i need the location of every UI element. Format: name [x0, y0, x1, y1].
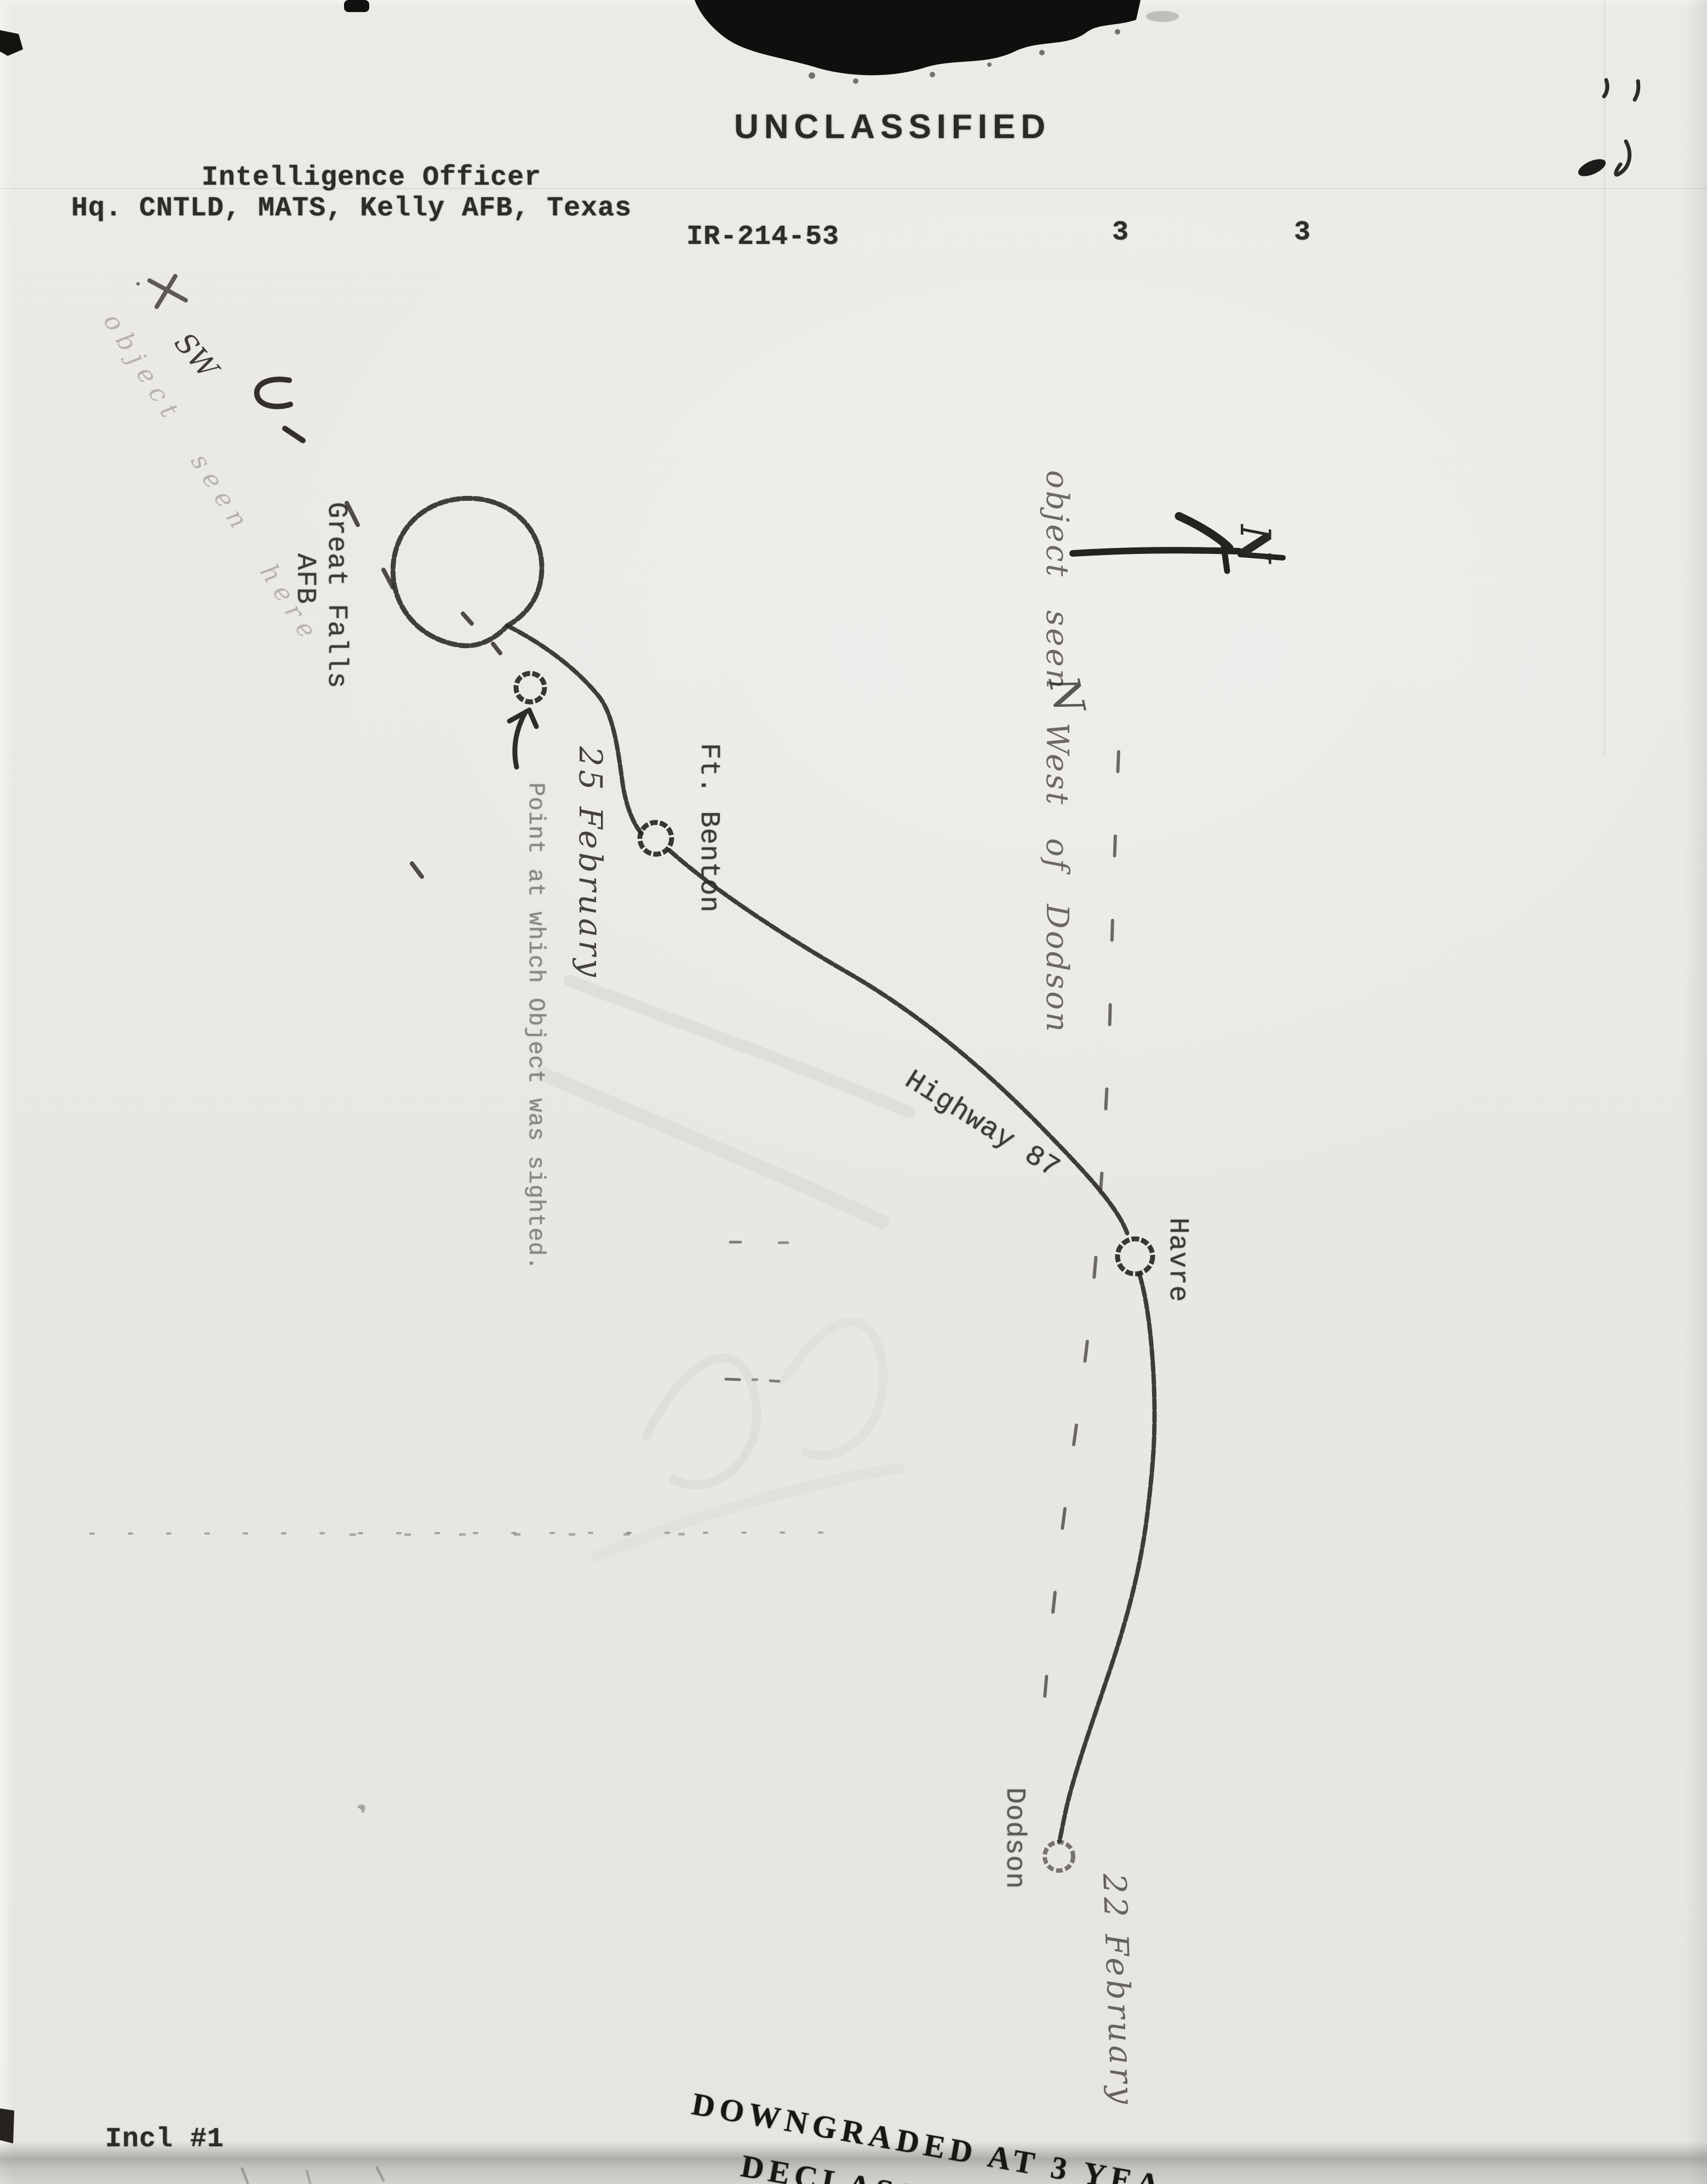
header-office-line: Intelligence Officer	[202, 162, 541, 193]
label-havre: Havre	[1162, 1217, 1193, 1302]
label-ft-benton: Ft. Benton	[693, 743, 724, 913]
leader-dashes-icon	[347, 503, 500, 877]
report-id: IR-214-53	[686, 221, 839, 253]
page-number-left: 3	[1112, 217, 1129, 248]
ink-specks-icon	[242, 1242, 788, 2183]
header-address-line: Hq. CNTLD, MATS, Kelly AFB, Texas	[71, 193, 632, 224]
stray-pen-marks-icon	[1604, 80, 1639, 175]
sw-direction-arrow-icon	[257, 379, 303, 441]
sighting-point-circle	[516, 673, 545, 702]
erased-pencil-ghosts-icon	[542, 981, 909, 1556]
x-mark-icon	[136, 276, 186, 307]
havre-circle	[1118, 1239, 1153, 1274]
handwritten-route-note: object seen West of Dodson	[1039, 470, 1075, 1034]
label-dodson: Dodson	[999, 1787, 1030, 1889]
great-falls-afb-circle	[393, 498, 542, 645]
page-number-right: 3	[1294, 217, 1311, 248]
hand-drawn-map	[0, 0, 1707, 2184]
ink-blot-icon	[1576, 156, 1608, 180]
sighting-arrow-icon	[509, 710, 536, 767]
redaction-mark-icon	[695, 0, 1141, 75]
corner-blot-top-left-icon	[0, 30, 23, 56]
enclosure-label: Incl #1	[105, 2124, 224, 2155]
corner-blot-bottom-left-icon	[0, 2108, 14, 2143]
ft-benton-circle	[640, 822, 672, 854]
handwritten-north-letter: N	[1231, 525, 1280, 563]
label-sighting-caption: Point at which Object was sighted.	[523, 782, 549, 1271]
redaction-smear-icon	[1146, 11, 1179, 22]
road-havre-to-dodson	[1059, 1274, 1155, 1841]
faint-dotted-line	[90, 1533, 833, 1535]
scanned-document-page: UNCLASSIFIED Intelligence Officer Hq. CN…	[0, 0, 1707, 2184]
classification-stamp: UNCLASSIFIED	[734, 107, 1051, 146]
label-great-falls-line1: Great Falls	[320, 502, 352, 689]
dodson-circle	[1045, 1842, 1073, 1871]
handwritten-date-sighting: 25 February	[572, 746, 609, 980]
top-edge-mark-icon	[344, 0, 369, 12]
